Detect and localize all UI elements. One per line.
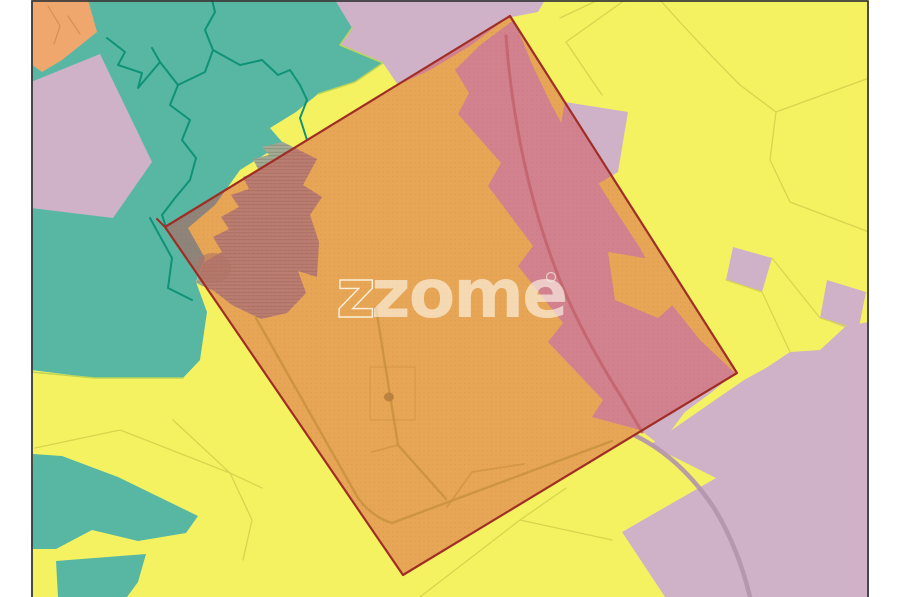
watermark-logo: z zome — [336, 255, 566, 334]
watermark-text: zome — [371, 255, 566, 334]
zoning-map-image: z zome — [0, 0, 900, 597]
watermark-outline-z: z — [336, 255, 374, 334]
map-canvas: z zome — [0, 0, 900, 597]
building-mark — [384, 393, 394, 402]
